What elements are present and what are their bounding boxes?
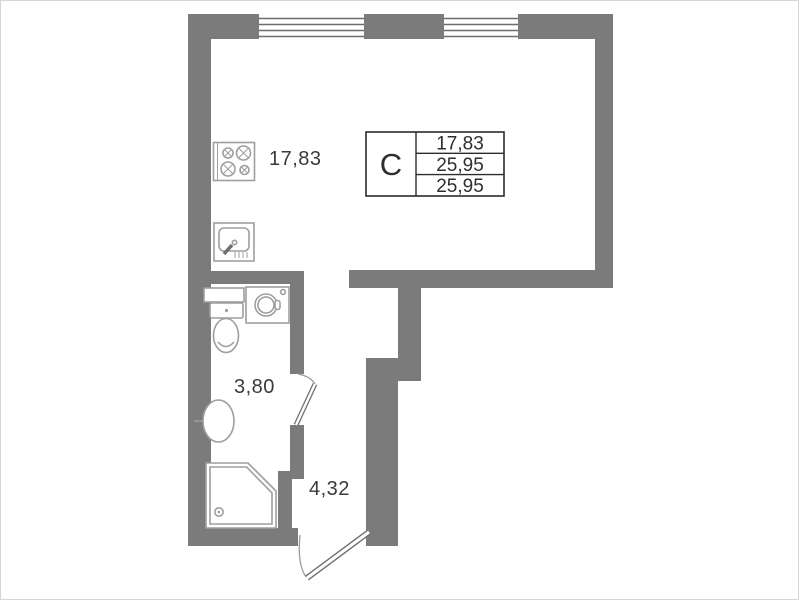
shower-drain-dot [218, 511, 221, 514]
floor-plan-canvas: 17,83 3,80 4,32 C 17,83 25,95 25,95 [0, 0, 799, 600]
stamp-value-row3: 25,95 [436, 176, 484, 197]
wall-hall-east-upper [398, 288, 421, 358]
entrance-door [299, 532, 369, 578]
washer-drum-inner [258, 297, 274, 313]
wall-bottom [188, 528, 298, 546]
bathroom-area-label: 3,80 [234, 376, 275, 398]
door-swing-arc [299, 535, 306, 577]
wall-hall-east-lower [366, 381, 398, 546]
wall-bath-lower-right [278, 471, 292, 528]
stove-icon [214, 143, 255, 181]
bathroom-door [296, 374, 315, 425]
hallway-area-label: 4,32 [309, 478, 350, 500]
door-swing-arc [298, 374, 315, 384]
sink-bowl [219, 228, 249, 251]
stamp-value-row2: 25,95 [436, 155, 484, 176]
bath-sink-basin [203, 400, 234, 442]
wall-kitchen-bath-divider [211, 271, 303, 284]
washer-handle [275, 301, 280, 310]
stamp-value-row1: 17,83 [436, 134, 484, 155]
area-stamp-table: C 17,83 25,95 25,95 [366, 132, 504, 197]
wall-bath-right-upper [290, 271, 304, 374]
wall-right [595, 14, 613, 288]
shelf-icon [204, 288, 244, 302]
sink-faucet-head [232, 240, 236, 244]
wall-top-pier-left [188, 14, 259, 39]
stamp-type-letter: C [380, 147, 402, 182]
kitchen-sink-icon [214, 223, 254, 261]
window-1 [259, 19, 364, 37]
window-2 [444, 19, 518, 37]
floor-plan-drawing: 17,83 3,80 4,32 C 17,83 25,95 25,95 [1, 1, 799, 600]
wall-mainroom-bottom [349, 270, 613, 288]
toilet-button [225, 309, 228, 312]
shelf-body [204, 288, 244, 302]
door-leaf-fill [307, 532, 369, 578]
shower-outer [206, 463, 276, 528]
toilet-icon [210, 303, 243, 353]
door-leaf-fill [296, 384, 315, 425]
wall-top-pier-middle [364, 14, 444, 39]
washing-machine-icon [246, 287, 289, 323]
main-room-area-label: 17,83 [269, 148, 322, 170]
wall-bath-right-stub [290, 425, 304, 479]
shower-tray-icon [206, 463, 276, 528]
toilet-bowl [214, 319, 239, 353]
wall-hall-east-jog [366, 358, 421, 381]
washer-knob [281, 290, 286, 295]
